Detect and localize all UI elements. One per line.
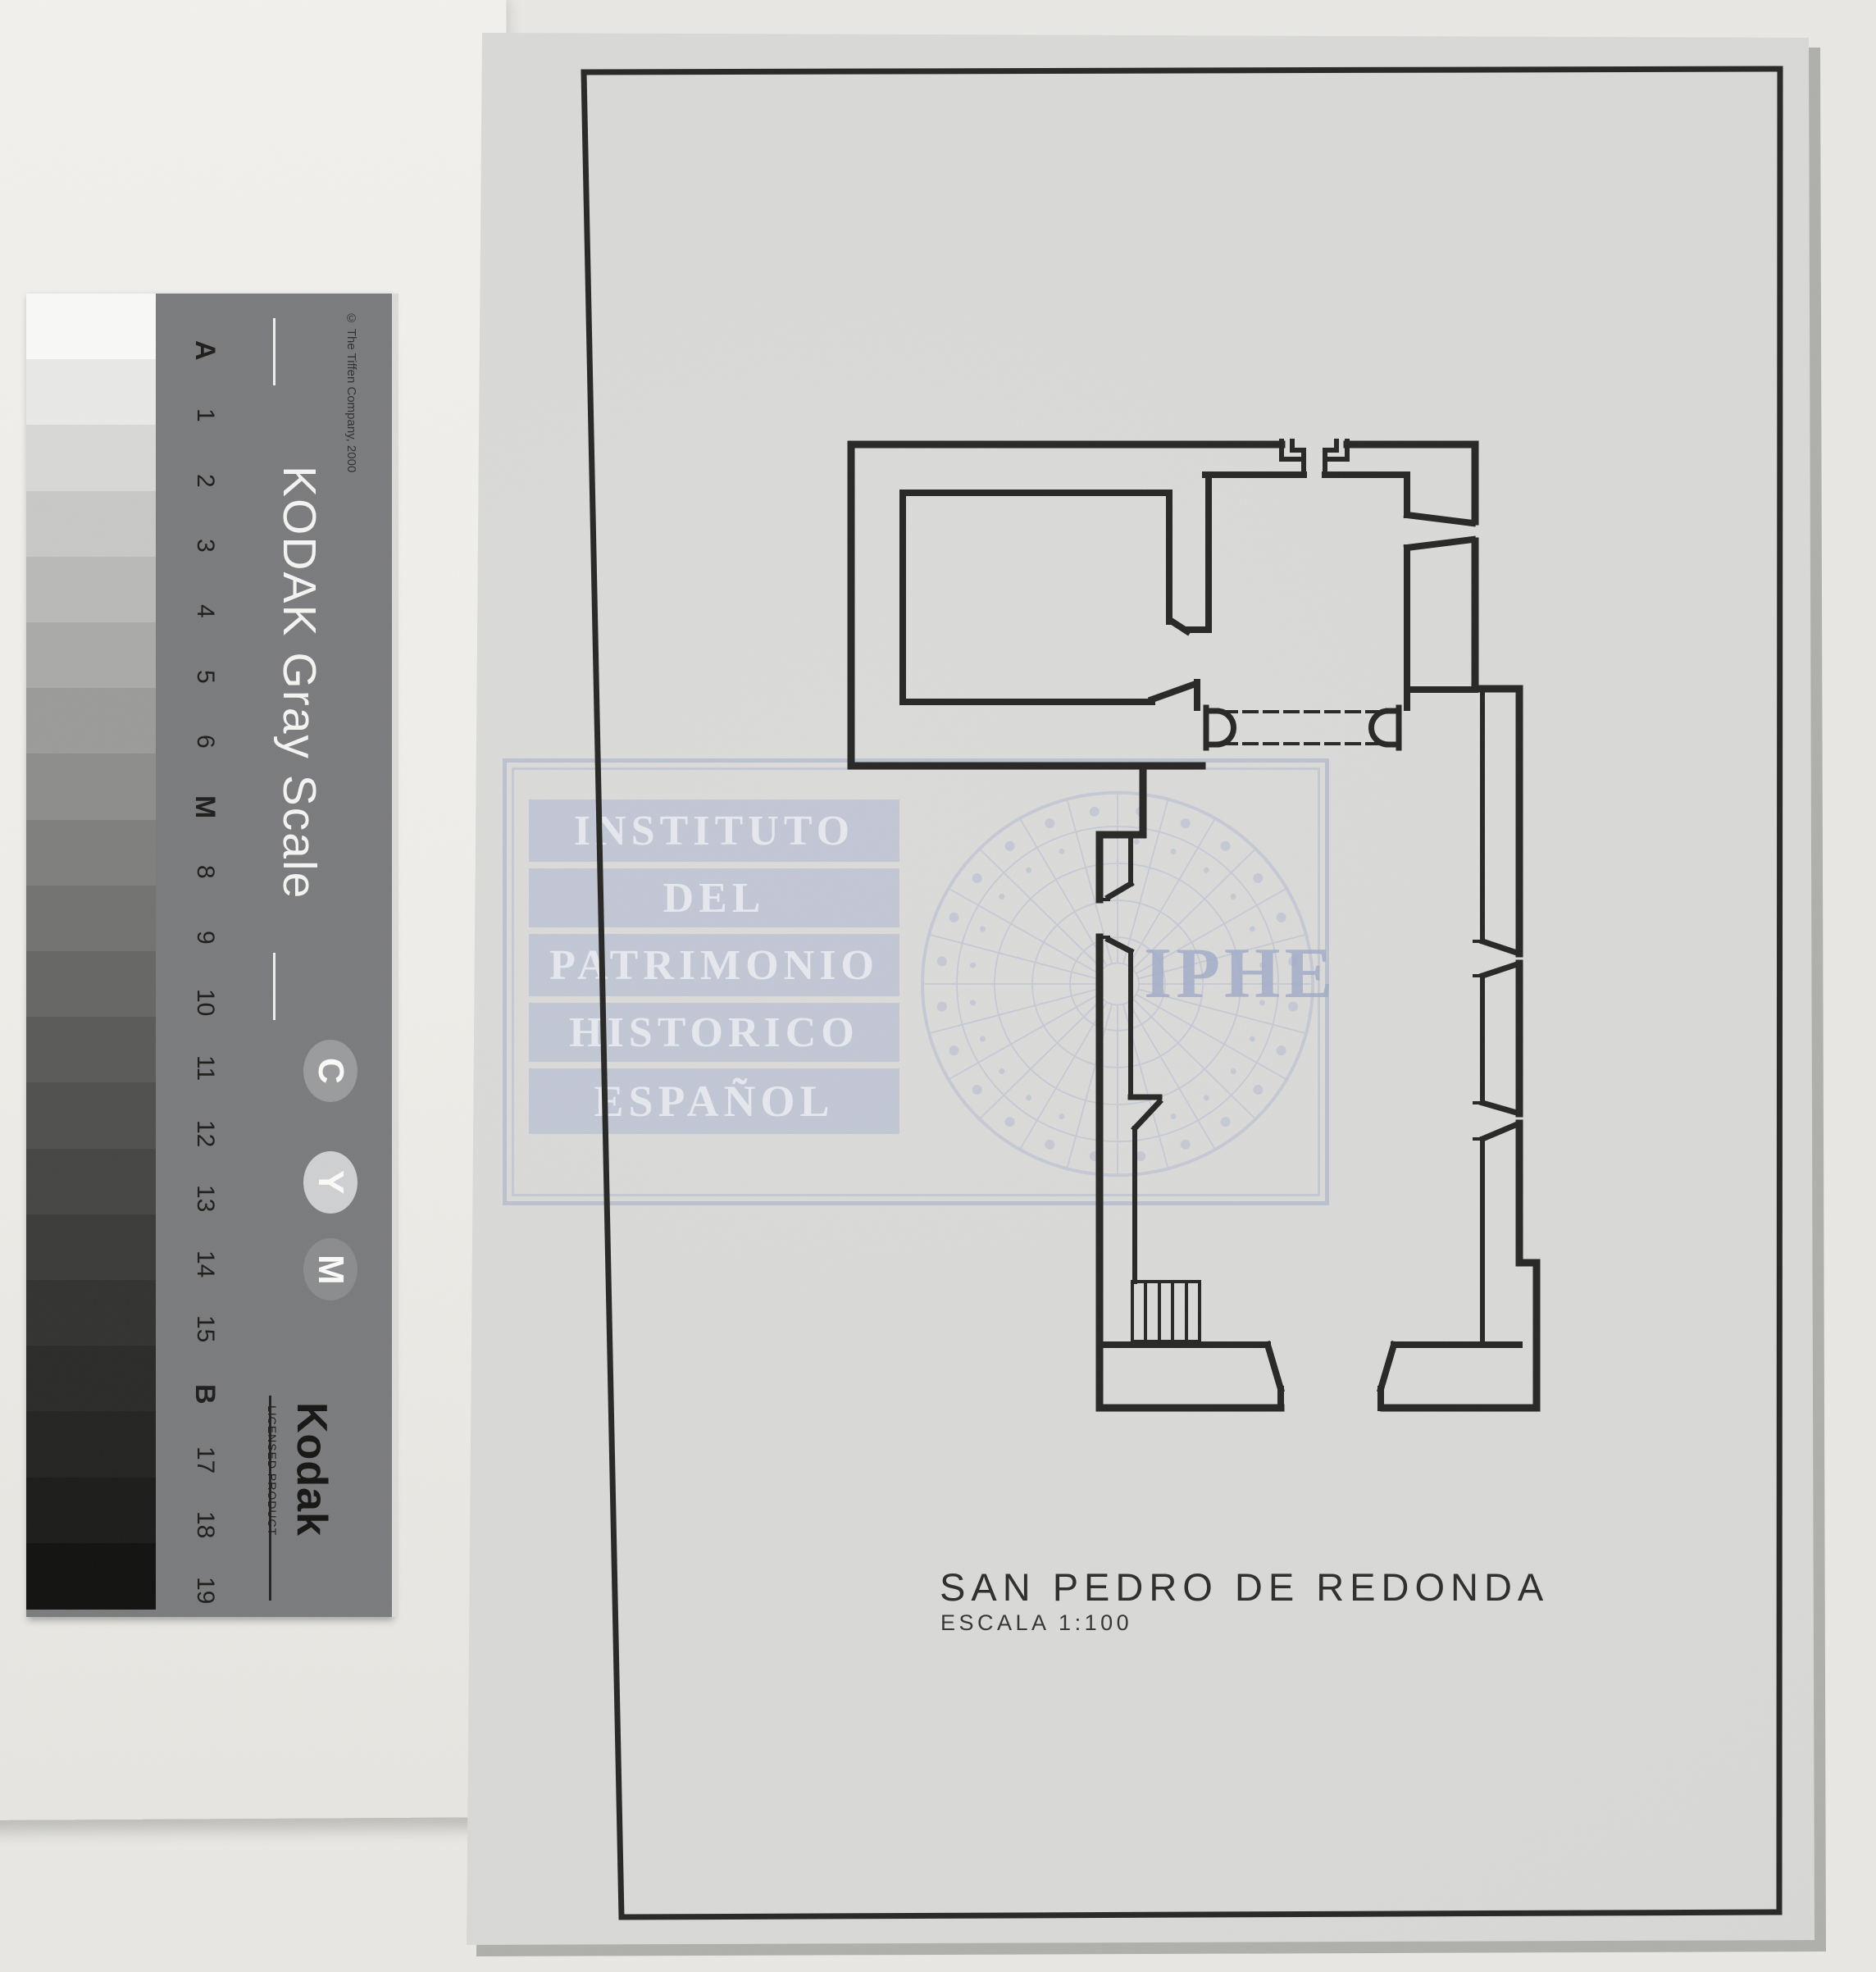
- west-door-splays: [1109, 884, 1159, 1128]
- gray-patch-16: [26, 1280, 156, 1346]
- sheet-border: [584, 69, 1780, 1917]
- wall-nave-west-inner: [1131, 835, 1135, 1282]
- card-edge: [392, 294, 398, 1617]
- step-label-3: 3: [187, 517, 223, 575]
- step-label-4: 4: [187, 582, 223, 640]
- wall-sacristy-room: [903, 493, 1197, 708]
- step-label-19: 19: [187, 1561, 223, 1619]
- kodak-gray-scale-card: A123456M89101112131415B171819 KODAK Gray…: [26, 294, 392, 1617]
- gray-patch-6: [26, 622, 156, 689]
- licensed-product-label: LICENSED PRODUCT: [266, 1405, 279, 1602]
- respond-column-west: [1206, 708, 1234, 748]
- gray-patch-18: [26, 1411, 156, 1478]
- step-label-18: 18: [187, 1496, 223, 1554]
- gray-patch-9: [26, 820, 156, 886]
- step-label-A: A: [187, 321, 223, 379]
- respond-column-east: [1372, 708, 1400, 748]
- gray-patch-2: [26, 359, 156, 426]
- step-label-1: 1: [187, 387, 223, 444]
- step-label-8: 8: [187, 844, 223, 901]
- step-label-M: M: [187, 778, 223, 836]
- gray-patch-10: [26, 886, 156, 952]
- step-label-10: 10: [187, 974, 223, 1032]
- east-window-splays: [1482, 941, 1519, 1139]
- west-door-feet: [1100, 899, 1109, 937]
- gray-patch-3: [26, 425, 156, 491]
- stairs: [1132, 1282, 1200, 1341]
- gray-patch-5: [26, 557, 156, 623]
- kodak-brand-logo: Kodak: [287, 1402, 336, 1599]
- step-label-6: 6: [187, 713, 223, 771]
- wall-outer-west: [1100, 769, 1281, 1408]
- step-label-17: 17: [187, 1431, 223, 1488]
- gray-patch-15: [26, 1214, 156, 1281]
- step-label-15: 15: [187, 1300, 223, 1358]
- gray-patch-4: [26, 491, 156, 558]
- card-title: KODAK Gray Scale: [272, 466, 326, 1269]
- step-label-11: 11: [187, 1040, 223, 1097]
- step-label-2: 2: [187, 452, 223, 509]
- step-label-5: 5: [187, 648, 223, 705]
- wall-chancel-west-door: [1169, 475, 1209, 631]
- channel-oval-M: M: [303, 1238, 357, 1300]
- plan-title: SAN PEDRO DE REDONDA: [940, 1564, 1549, 1610]
- gray-patch-7: [26, 688, 156, 754]
- step-label-12: 12: [187, 1104, 223, 1162]
- rule-line: [273, 318, 275, 385]
- plan-scale-label: ESCALA 1:100: [940, 1610, 1132, 1636]
- wall-outer-east: [1347, 444, 1537, 1408]
- gray-patch-20: [26, 1543, 156, 1610]
- gray-patch-17: [26, 1346, 156, 1412]
- channel-oval-Y: Y: [303, 1151, 357, 1214]
- gray-patch-14: [26, 1149, 156, 1215]
- gray-patch-13: [26, 1082, 156, 1149]
- chancel-arch-dashed-lines: [1223, 712, 1383, 744]
- step-label-13: 13: [187, 1170, 223, 1227]
- gray-patch-11: [26, 951, 156, 1018]
- wall-entrance-west: [1103, 1345, 1281, 1408]
- gray-patch-1: [26, 294, 156, 360]
- wall-chancel-east-window: [1407, 475, 1475, 708]
- step-label-14: 14: [187, 1235, 223, 1292]
- wall-entrance-east: [1381, 1345, 1519, 1408]
- gray-patch-19: [26, 1478, 156, 1544]
- gray-patch-8: [26, 754, 156, 820]
- rule-line: [273, 953, 275, 1020]
- card-copyright: © The Tiffen Company, 2000: [344, 312, 358, 820]
- gray-patch-column: [26, 294, 156, 1617]
- step-label-9: 9: [187, 909, 223, 966]
- step-label-B: B: [187, 1366, 223, 1423]
- gray-patch-12: [26, 1017, 156, 1083]
- channel-oval-C: C: [303, 1040, 357, 1102]
- belfry-notches: [1282, 441, 1347, 473]
